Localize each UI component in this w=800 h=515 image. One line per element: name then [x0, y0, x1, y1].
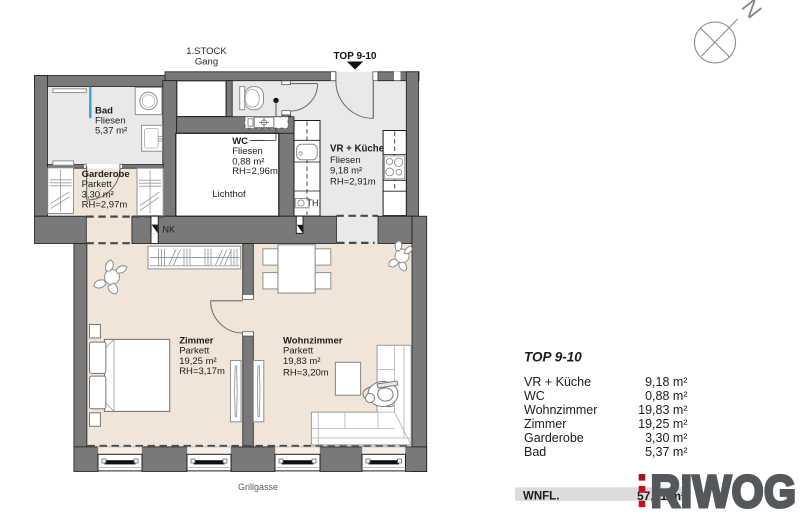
- svg-text:Parkett: Parkett: [179, 345, 209, 356]
- svg-text:5,37 m²: 5,37 m²: [645, 445, 687, 459]
- svg-text:Garderobe: Garderobe: [524, 431, 584, 445]
- svg-text:TOP 9-10: TOP 9-10: [524, 350, 582, 365]
- svg-text:WC: WC: [524, 389, 545, 403]
- svg-text:1.STOCK: 1.STOCK: [186, 46, 227, 57]
- svg-text:Parkett: Parkett: [283, 345, 313, 356]
- svg-text:Zimmer: Zimmer: [524, 417, 566, 431]
- svg-text:Wohnzimmer: Wohnzimmer: [524, 403, 597, 417]
- svg-text:9,18 m²: 9,18 m²: [645, 375, 687, 389]
- svg-text:RH=3,20m: RH=3,20m: [283, 368, 329, 379]
- svg-text:VR + Küche: VR + Küche: [524, 375, 591, 389]
- svg-text:RH=3,17m: RH=3,17m: [179, 366, 225, 377]
- svg-text:9,18 m²: 9,18 m²: [330, 166, 362, 177]
- svg-text:Gang: Gang: [195, 57, 218, 68]
- svg-text:RIWOG: RIWOG: [651, 467, 797, 515]
- svg-text:19,83 m²: 19,83 m²: [638, 403, 687, 417]
- svg-text:19,25 m²: 19,25 m²: [638, 417, 687, 431]
- svg-text:Parkett: Parkett: [82, 179, 112, 190]
- svg-text:VR + Küche: VR + Küche: [330, 143, 385, 154]
- svg-text:TOP 9-10: TOP 9-10: [334, 51, 377, 62]
- svg-text:Grillgasse: Grillgasse: [238, 482, 278, 492]
- svg-text:Bad: Bad: [524, 445, 546, 459]
- svg-text:Lichthof: Lichthof: [212, 189, 246, 200]
- svg-text:3,30 m²: 3,30 m²: [645, 431, 687, 445]
- svg-text:Fliesen: Fliesen: [232, 146, 263, 157]
- svg-text:WC: WC: [232, 136, 248, 147]
- svg-text:RH=2,97m: RH=2,97m: [82, 200, 128, 211]
- svg-text:RH=2,91m: RH=2,91m: [330, 177, 376, 188]
- svg-text:0,88 m²: 0,88 m²: [645, 389, 687, 403]
- svg-text:Fliesen: Fliesen: [330, 155, 361, 166]
- svg-text:19,25 m²: 19,25 m²: [179, 356, 217, 367]
- svg-text:NK: NK: [163, 224, 176, 234]
- svg-text:TH: TH: [307, 198, 319, 208]
- svg-text:WNFL.: WNFL.: [523, 490, 559, 502]
- svg-text:19,83 m²: 19,83 m²: [283, 356, 321, 367]
- svg-text:5,37 m²: 5,37 m²: [95, 126, 127, 137]
- svg-text:RH=2,96m: RH=2,96m: [232, 166, 278, 177]
